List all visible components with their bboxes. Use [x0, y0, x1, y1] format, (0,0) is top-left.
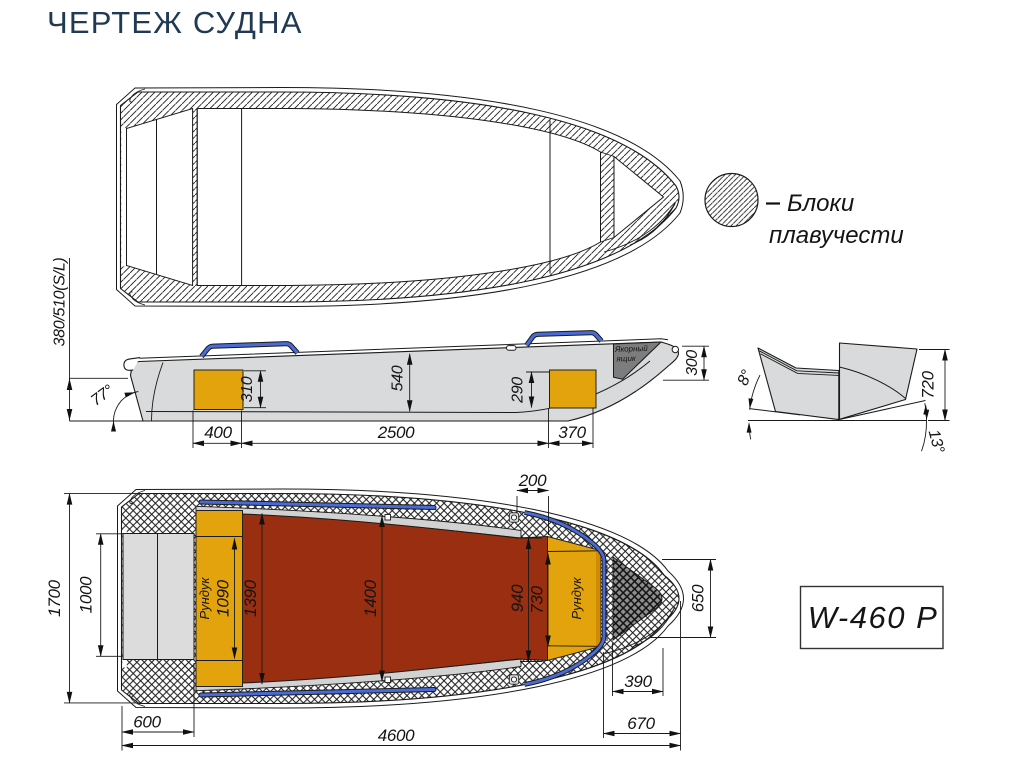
svg-text:730: 730 — [528, 585, 547, 613]
svg-text:600: 600 — [133, 713, 161, 732]
svg-text:1090: 1090 — [214, 579, 233, 616]
svg-text:940: 940 — [508, 584, 527, 612]
svg-text:720: 720 — [919, 370, 938, 398]
svg-text:290: 290 — [510, 377, 527, 404]
svg-text:W-460 P: W-460 P — [808, 600, 939, 635]
svg-text:300: 300 — [684, 350, 701, 376]
svg-text:2500: 2500 — [377, 423, 415, 442]
svg-text:310: 310 — [239, 376, 256, 402]
svg-text:Рундук: Рундук — [569, 577, 584, 620]
svg-text:Рундук: Рундук — [197, 577, 212, 620]
svg-text:1700: 1700 — [45, 579, 64, 616]
svg-text:1390: 1390 — [241, 579, 260, 616]
svg-text:ЧЕРТЕЖ СУДНА: ЧЕРТЕЖ СУДНА — [47, 5, 303, 40]
svg-text:200: 200 — [518, 471, 547, 490]
svg-text:4600: 4600 — [378, 726, 415, 745]
svg-text:ящик: ящик — [615, 354, 637, 364]
svg-text:плавучести: плавучести — [769, 222, 904, 249]
svg-text:650: 650 — [689, 584, 708, 612]
svg-text:390: 390 — [624, 672, 652, 691]
svg-text:370: 370 — [558, 423, 586, 442]
svg-text:1400: 1400 — [361, 579, 380, 616]
svg-text:380/510(S/L): 380/510(S/L) — [52, 258, 69, 347]
svg-text:400: 400 — [204, 423, 232, 442]
svg-text:1000: 1000 — [77, 576, 96, 613]
svg-text:Блоки: Блоки — [787, 190, 854, 217]
svg-text:Якорный: Якорный — [614, 344, 649, 354]
svg-text:670: 670 — [627, 714, 655, 733]
svg-text:540: 540 — [390, 365, 407, 391]
